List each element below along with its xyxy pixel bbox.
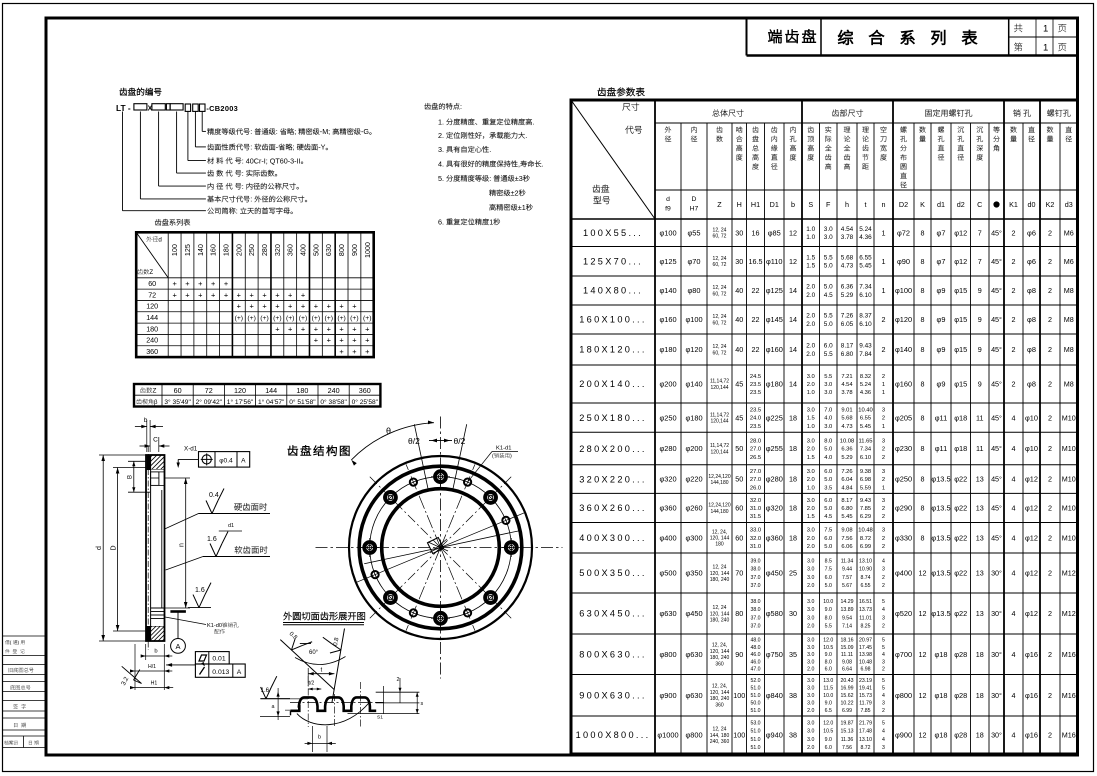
svg-text:H/1: H/1	[148, 664, 156, 670]
svg-text:φ9: φ9	[937, 380, 946, 389]
svg-text:26.5: 26.5	[750, 455, 761, 461]
svg-text:180, 240: 180, 240	[710, 655, 730, 661]
svg-text:9.43: 9.43	[859, 343, 872, 350]
svg-text:60, 72: 60, 72	[713, 291, 727, 297]
svg-text:: 40Cr-I; QT60-3-II: : 40Cr-I; QT60-3-II	[242, 156, 301, 165]
svg-text:4.36: 4.36	[859, 234, 872, 241]
svg-text:30: 30	[735, 257, 743, 266]
svg-text:5.45: 5.45	[860, 424, 871, 430]
svg-text:A: A	[241, 457, 246, 464]
svg-text:2: 2	[882, 506, 885, 512]
svg-text:5.68: 5.68	[841, 416, 852, 422]
svg-text:φ8: φ8	[1027, 315, 1036, 324]
svg-text:φ18: φ18	[934, 650, 947, 659]
svg-text:(+): (+)	[350, 315, 359, 322]
svg-text:2: 2	[882, 667, 885, 673]
svg-text:13: 13	[976, 609, 984, 618]
svg-text:7: 7	[978, 257, 982, 266]
svg-text:2: 2	[882, 455, 885, 461]
svg-text:9.0: 9.0	[825, 737, 832, 743]
svg-text:21.79: 21.79	[859, 721, 872, 727]
svg-text:2.0: 2.0	[806, 292, 815, 299]
svg-text:800X630...: 800X630...	[579, 649, 646, 659]
svg-text:φ100: φ100	[685, 315, 702, 324]
svg-text:144,180: 144,180	[710, 509, 728, 515]
svg-text:4: 4	[882, 737, 885, 743]
svg-text:2: 2	[1012, 228, 1016, 237]
svg-text:32.0: 32.0	[750, 536, 761, 542]
svg-text:φ900: φ900	[659, 691, 676, 700]
svg-text:3.0: 3.0	[824, 234, 833, 241]
svg-text:+: +	[198, 279, 202, 288]
svg-text:φ28: φ28	[954, 650, 967, 659]
svg-text:3.78: 3.78	[841, 234, 854, 241]
svg-text:45°: 45°	[991, 444, 1002, 453]
svg-text:φ900: φ900	[895, 731, 912, 740]
svg-text:12: 12	[919, 731, 927, 740]
svg-text:14: 14	[789, 286, 797, 295]
svg-text:φ630: φ630	[685, 691, 702, 700]
svg-text:24.5: 24.5	[750, 374, 761, 380]
svg-text:φ180: φ180	[766, 380, 783, 389]
svg-text:45: 45	[735, 413, 743, 422]
svg-text:φ70: φ70	[687, 257, 700, 266]
svg-text:38: 38	[789, 691, 797, 700]
svg-text:φ9: φ9	[937, 315, 946, 324]
svg-text:φ16: φ16	[1025, 731, 1038, 740]
svg-text:9.54: 9.54	[842, 615, 852, 621]
svg-text:+: +	[262, 302, 266, 311]
svg-text:1.6: 1.6	[207, 536, 217, 543]
svg-text:(+): (+)	[324, 315, 333, 322]
svg-text:φ100: φ100	[895, 286, 912, 295]
svg-text:240: 240	[146, 336, 158, 345]
svg-text:+: +	[365, 324, 369, 333]
svg-text:1.5: 1.5	[807, 416, 815, 422]
svg-text:Z: Z	[717, 200, 722, 209]
svg-text:9: 9	[978, 286, 982, 295]
svg-text:+: +	[352, 336, 356, 345]
svg-text:2: 2	[882, 416, 885, 422]
svg-text:3: 3	[882, 745, 885, 751]
svg-text:4: 4	[1012, 650, 1016, 659]
svg-text:4.0: 4.0	[824, 416, 832, 422]
svg-text:10.40: 10.40	[858, 407, 873, 413]
svg-text:6.10: 6.10	[860, 455, 871, 461]
svg-text:1.6: 1.6	[261, 687, 270, 694]
svg-text::: :	[489, 174, 491, 183]
svg-text:φ400: φ400	[895, 569, 912, 578]
svg-text:φ22: φ22	[954, 609, 967, 618]
svg-text:φ8: φ8	[1027, 345, 1036, 354]
svg-text::: :	[242, 182, 244, 191]
svg-text:3: 3	[882, 469, 885, 475]
svg-text:φ9: φ9	[937, 286, 946, 295]
svg-text:6.5: 6.5	[825, 708, 832, 714]
svg-text:2.0: 2.0	[806, 321, 815, 328]
svg-text:30: 30	[789, 609, 797, 618]
svg-text:60, 72: 60, 72	[713, 350, 727, 356]
svg-text:5.0: 5.0	[824, 544, 832, 550]
svg-text:5.5: 5.5	[825, 624, 832, 630]
svg-text:1: 1	[489, 218, 493, 227]
svg-text:160: 160	[209, 244, 218, 256]
svg-text:13: 13	[976, 569, 984, 578]
svg-text:K1: K1	[1009, 200, 1018, 209]
svg-text:3.0: 3.0	[807, 729, 814, 735]
svg-text:φ18: φ18	[934, 691, 947, 700]
svg-text:8.17: 8.17	[841, 498, 852, 504]
svg-text:7.5: 7.5	[825, 567, 832, 573]
svg-text:8.17: 8.17	[841, 343, 854, 350]
svg-text:H7: H7	[690, 206, 699, 213]
svg-text:φ360: φ360	[659, 504, 676, 513]
svg-text:200: 200	[234, 244, 243, 256]
svg-text:+: +	[172, 290, 176, 299]
svg-text:180: 180	[715, 542, 724, 548]
svg-text:φ11: φ11	[935, 413, 947, 422]
svg-text:10.22: 10.22	[841, 701, 854, 707]
svg-text:φ10: φ10	[1025, 444, 1038, 453]
svg-text:2: 2	[1048, 413, 1052, 422]
svg-text:φ16: φ16	[1025, 691, 1038, 700]
svg-text:φ200: φ200	[685, 444, 702, 453]
svg-text:4.73: 4.73	[841, 263, 854, 270]
svg-text:b: b	[154, 649, 157, 655]
svg-text:+: +	[365, 336, 369, 345]
svg-text:46.0: 46.0	[750, 659, 760, 665]
svg-text:38.0: 38.0	[750, 607, 760, 613]
svg-text:12, 24: 12, 24	[713, 256, 727, 262]
svg-text:45°: 45°	[991, 315, 1002, 324]
svg-text:47.0: 47.0	[750, 667, 760, 673]
svg-text:7.34: 7.34	[859, 284, 872, 291]
svg-text:φ750: φ750	[766, 650, 783, 659]
svg-text::: :	[250, 143, 252, 152]
svg-text:D: D	[692, 196, 697, 203]
svg-text:32.0: 32.0	[750, 498, 761, 504]
svg-text:θ/2: θ/2	[408, 436, 420, 446]
svg-text:100: 100	[733, 731, 745, 740]
svg-text:6.64: 6.64	[842, 667, 852, 673]
svg-text:13: 13	[976, 504, 984, 513]
svg-text:±2: ±2	[511, 189, 519, 198]
svg-text:Z: Z	[149, 269, 153, 276]
svg-text:4.54: 4.54	[841, 382, 853, 388]
svg-text:20.43: 20.43	[841, 678, 854, 684]
svg-text:22: 22	[752, 345, 760, 354]
svg-text:10.48: 10.48	[858, 528, 873, 534]
svg-text:17.48: 17.48	[859, 729, 872, 735]
svg-text:+: +	[352, 302, 356, 311]
svg-text:1.0: 1.0	[806, 226, 815, 233]
svg-text:2: 2	[882, 544, 885, 550]
svg-text:320: 320	[273, 244, 282, 256]
svg-text:360X260...: 360X260...	[579, 503, 646, 513]
svg-text:6.36: 6.36	[841, 447, 852, 453]
svg-text:9.0: 9.0	[825, 701, 832, 707]
svg-text:144, 180: 144, 180	[710, 733, 730, 739]
svg-text:15.73: 15.73	[859, 693, 872, 699]
svg-text:φ360: φ360	[766, 533, 783, 542]
svg-text:9.01: 9.01	[841, 407, 852, 413]
svg-text:60: 60	[148, 279, 156, 288]
svg-text:72: 72	[205, 386, 213, 395]
svg-text:D1: D1	[770, 200, 779, 209]
svg-text:8: 8	[921, 444, 925, 453]
svg-text:φ255: φ255	[766, 444, 783, 453]
svg-text:M8: M8	[1064, 380, 1074, 389]
svg-text:5.29: 5.29	[841, 292, 854, 299]
svg-text:+: +	[301, 324, 305, 333]
svg-text:10.48: 10.48	[859, 659, 872, 665]
svg-text:6.0: 6.0	[824, 536, 832, 542]
svg-text:+: +	[237, 302, 241, 311]
svg-text:4: 4	[1012, 475, 1016, 484]
svg-text:60, 72: 60, 72	[713, 320, 727, 326]
svg-text:+: +	[250, 290, 254, 299]
svg-text:9.43: 9.43	[860, 498, 871, 504]
svg-text:27.0: 27.0	[750, 469, 761, 475]
svg-text:+: +	[327, 336, 331, 345]
svg-text:13.10: 13.10	[859, 559, 872, 565]
svg-text:13: 13	[976, 475, 984, 484]
svg-text:60°: 60°	[309, 650, 319, 656]
svg-text:35: 35	[789, 650, 797, 659]
svg-text:+: +	[224, 290, 228, 299]
svg-text:±1: ±1	[518, 203, 526, 212]
svg-text:2: 2	[1048, 475, 1052, 484]
svg-text:-Y: -Y	[318, 143, 325, 152]
svg-text:3: 3	[882, 438, 885, 444]
svg-text:4: 4	[882, 652, 885, 658]
svg-text:360: 360	[715, 661, 724, 667]
svg-text:3.0: 3.0	[824, 390, 832, 396]
svg-text:β: β	[154, 400, 158, 406]
svg-text:2: 2	[882, 575, 885, 581]
svg-text:φ630: φ630	[685, 650, 702, 659]
svg-text:φ22: φ22	[954, 475, 967, 484]
svg-text:120: 120	[146, 302, 158, 311]
svg-text:(+): (+)	[363, 315, 372, 322]
svg-text:24.0: 24.0	[750, 416, 761, 422]
svg-text:2.0: 2.0	[807, 447, 815, 453]
svg-text:2: 2	[882, 708, 885, 714]
svg-text:4: 4	[1012, 731, 1016, 740]
svg-text:0.01: 0.01	[212, 656, 225, 663]
svg-text:,: ,	[518, 160, 520, 169]
svg-text:45°: 45°	[991, 257, 1002, 266]
svg-text:5: 5	[882, 678, 885, 684]
svg-text:2: 2	[1012, 286, 1016, 295]
svg-text:12,24,120: 12,24,120	[708, 503, 730, 509]
svg-text:11,14,72: 11,14,72	[710, 379, 729, 385]
svg-text:51.0: 51.0	[750, 737, 760, 743]
svg-text:50.0: 50.0	[750, 701, 760, 707]
svg-text:4: 4	[1012, 533, 1016, 542]
svg-text:+: +	[237, 290, 241, 299]
svg-text:φ18: φ18	[954, 413, 967, 422]
svg-text:): )	[510, 454, 512, 460]
svg-text:1000: 1000	[363, 242, 372, 258]
svg-text:51.0: 51.0	[750, 693, 760, 699]
svg-text:5.68: 5.68	[841, 254, 854, 261]
svg-text:2.0: 2.0	[807, 506, 815, 512]
svg-text:4.84: 4.84	[841, 485, 853, 491]
svg-text:72: 72	[148, 290, 156, 299]
svg-text:180X120...: 180X120...	[579, 345, 646, 355]
svg-text:8.72: 8.72	[860, 536, 871, 542]
svg-text:1: 1	[882, 257, 886, 266]
svg-text:φ160: φ160	[895, 380, 912, 389]
svg-text:45°: 45°	[991, 345, 1002, 354]
svg-text:S1: S1	[377, 715, 383, 721]
svg-text:23.5: 23.5	[750, 424, 761, 430]
svg-text:8: 8	[921, 504, 925, 513]
svg-text:1: 1	[882, 228, 886, 237]
svg-text:2: 2	[1048, 345, 1052, 354]
svg-text:2: 2	[1048, 257, 1052, 266]
svg-text:t/2: t/2	[309, 681, 315, 687]
svg-text::: :	[242, 169, 244, 178]
svg-text:5: 5	[882, 637, 885, 643]
svg-text:11,14,72: 11,14,72	[710, 443, 729, 449]
svg-text:3.0: 3.0	[807, 678, 814, 684]
svg-text:M16: M16	[1062, 691, 1076, 700]
svg-text:φ12: φ12	[1025, 504, 1038, 513]
svg-text:50: 50	[735, 475, 743, 484]
svg-text:100: 100	[170, 244, 179, 256]
svg-text:18.16: 18.16	[841, 637, 854, 643]
svg-text:M10: M10	[1062, 475, 1076, 484]
svg-text::: :	[236, 207, 238, 216]
svg-text:3.0: 3.0	[807, 701, 814, 707]
svg-text:12, 24,: 12, 24,	[712, 684, 727, 690]
svg-text:φ7: φ7	[937, 257, 946, 266]
svg-text:140: 140	[196, 244, 205, 256]
svg-text:φ1000: φ1000	[657, 731, 678, 740]
svg-text:45°: 45°	[991, 380, 1002, 389]
svg-text:+: +	[288, 324, 292, 333]
svg-text:d: d	[158, 237, 162, 244]
svg-text:30°: 30°	[991, 731, 1002, 740]
svg-text:30°: 30°	[991, 609, 1002, 618]
svg-text:t: t	[321, 667, 323, 674]
svg-text:1.0: 1.0	[807, 390, 815, 396]
svg-text:7.57: 7.57	[842, 575, 852, 581]
svg-text:4.5: 4.5	[824, 292, 833, 299]
svg-text:φ120: φ120	[895, 315, 912, 324]
svg-text:7.84: 7.84	[859, 351, 872, 358]
svg-text:2: 2	[1048, 286, 1052, 295]
svg-text:3.0: 3.0	[807, 374, 815, 380]
svg-text:45°: 45°	[991, 504, 1002, 513]
svg-text:2: 2	[1048, 504, 1052, 513]
svg-text:3: 3	[882, 659, 885, 665]
svg-text:-M;: -M;	[320, 127, 330, 136]
svg-text:+: +	[288, 302, 292, 311]
svg-text:360: 360	[359, 386, 371, 395]
svg-text:8.37: 8.37	[859, 313, 872, 320]
svg-text:.: .	[489, 145, 491, 154]
svg-text:120: 120	[234, 386, 246, 395]
svg-text:14: 14	[789, 380, 797, 389]
svg-text:5.24: 5.24	[859, 226, 872, 233]
svg-text:φ300: φ300	[685, 533, 702, 542]
svg-text:120, 144: 120, 144	[710, 536, 730, 542]
svg-text:φ125: φ125	[659, 257, 676, 266]
svg-text:S: S	[808, 200, 813, 209]
svg-text:φ630: φ630	[659, 609, 676, 618]
svg-text:M8: M8	[1064, 345, 1074, 354]
svg-text:11,14,72: 11,14,72	[710, 412, 729, 418]
svg-text:1.0: 1.0	[807, 424, 815, 430]
svg-text:+: +	[275, 290, 279, 299]
svg-text:8.5: 8.5	[825, 559, 832, 565]
svg-text:45: 45	[735, 380, 743, 389]
svg-text:3.0: 3.0	[807, 693, 814, 699]
svg-text::: :	[276, 127, 278, 136]
svg-text:;: ;	[293, 143, 295, 152]
svg-text:144: 144	[265, 386, 277, 395]
svg-text:12, 24: 12, 24	[713, 727, 727, 733]
svg-text:Z: Z	[152, 388, 156, 395]
svg-text:120, 144: 120, 144	[710, 611, 730, 617]
svg-text:3.0: 3.0	[807, 652, 814, 658]
svg-text:2.0: 2.0	[807, 624, 814, 630]
svg-text:3: 3	[882, 498, 885, 504]
svg-text:5.45: 5.45	[841, 514, 852, 520]
svg-text:+: +	[339, 302, 343, 311]
svg-text:9: 9	[978, 315, 982, 324]
svg-text:2: 2	[1048, 315, 1052, 324]
svg-text:53.0: 53.0	[750, 721, 760, 727]
svg-text:33.0: 33.0	[750, 528, 761, 534]
svg-text:d: d	[666, 196, 670, 203]
svg-text:27.0: 27.0	[750, 477, 761, 483]
svg-text:6.99: 6.99	[860, 544, 871, 550]
svg-text:3: 3	[882, 528, 885, 534]
svg-text:180, 240: 180, 240	[710, 617, 730, 623]
svg-text:7.14: 7.14	[842, 624, 852, 630]
svg-text:16.5: 16.5	[749, 257, 763, 266]
svg-text:4: 4	[882, 693, 885, 699]
svg-text:θ/2: θ/2	[454, 436, 466, 446]
svg-text:12, 24: 12, 24	[713, 344, 727, 350]
svg-text:10.5: 10.5	[823, 645, 833, 651]
svg-text:M10: M10	[1062, 533, 1076, 542]
svg-text:φ280: φ280	[766, 475, 783, 484]
svg-text:3.0: 3.0	[824, 382, 832, 388]
svg-text:φ140: φ140	[895, 345, 912, 354]
svg-text:180: 180	[221, 244, 230, 256]
svg-text:H1: H1	[751, 200, 760, 209]
svg-text:1: 1	[882, 424, 885, 430]
svg-text:1.5: 1.5	[806, 263, 815, 270]
svg-text:φ225: φ225	[766, 413, 783, 422]
svg-text:23.5: 23.5	[750, 407, 761, 413]
svg-text:φ250: φ250	[895, 475, 912, 484]
svg-text:38: 38	[789, 731, 797, 740]
svg-text:5.0: 5.0	[824, 506, 832, 512]
svg-text:n: n	[178, 543, 185, 547]
svg-text:45°: 45°	[991, 413, 1002, 422]
svg-text:6.55: 6.55	[860, 416, 871, 422]
svg-text:d1: d1	[228, 523, 234, 529]
svg-text:1: 1	[1043, 43, 1048, 54]
svg-text:φ100: φ100	[659, 228, 676, 237]
svg-text:8.32: 8.32	[860, 374, 871, 380]
